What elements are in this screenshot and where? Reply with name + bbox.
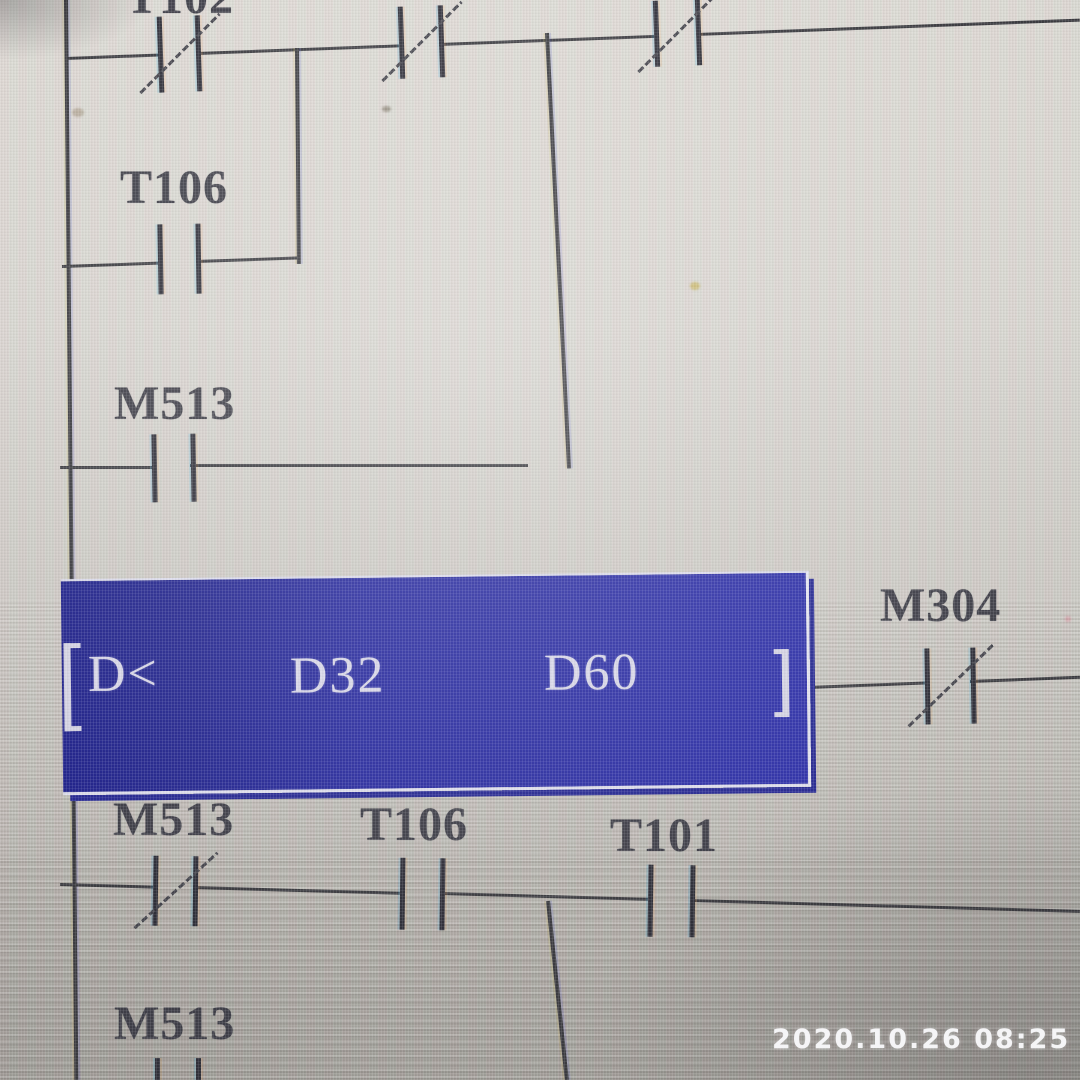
contact-rung1-1-nc[interactable]: [157, 15, 203, 92]
label-rung3-m513: M513: [113, 792, 234, 847]
contact-bar-left: [924, 648, 930, 724]
screen-smudge: [382, 106, 391, 112]
monitor-photo: T102 T106 M513 M304 M513 T106 T101 M513 …: [0, 0, 1080, 1080]
contact-bar-right: [196, 1058, 201, 1080]
contact-bar-left: [647, 865, 653, 937]
contact-m304-nc[interactable]: [924, 648, 976, 725]
rung2-output-wire-seg1: [808, 682, 925, 689]
rung3-wire-seg4: [690, 899, 1080, 913]
contact-bar-left: [399, 858, 405, 930]
contact-rung3-t106-no[interactable]: [399, 858, 445, 931]
left-power-rail: [64, 0, 78, 1080]
label-rung1-contact1: T102: [126, 0, 234, 25]
contact-bar-left: [398, 7, 406, 79]
contact-bar-left: [157, 17, 165, 93]
rung3-wire-seg2: [193, 886, 400, 895]
rung3-wire-seg3: [440, 892, 648, 901]
open-bracket-icon: [64, 643, 82, 731]
nc-slash-icon: [908, 643, 995, 727]
branch-vertical-t106: [295, 48, 301, 264]
contact-bar-left: [155, 1058, 160, 1080]
contact-bar-left: [153, 856, 159, 926]
rung1-wire-seg1: [66, 53, 160, 60]
compare-opcode: D<: [88, 644, 160, 704]
contact-bar-right: [439, 858, 445, 930]
branch-t106-wire-seg2: [196, 256, 300, 263]
label-branch-m513: M513: [114, 376, 235, 431]
close-bracket-icon: [774, 649, 790, 717]
contact-bar-right: [689, 865, 695, 937]
label-m304: M304: [880, 578, 1001, 633]
rung2-output-wire-seg2: [970, 676, 1080, 683]
contact-branch-t106-no[interactable]: [157, 224, 201, 295]
nc-slash-icon: [134, 852, 219, 929]
contact-rung4-m513-no[interactable]: [155, 1058, 201, 1080]
rung1-wire-seg4: [696, 19, 1080, 36]
branch-m513-wire-seg2: [190, 464, 528, 467]
contact-bar-right: [193, 856, 199, 926]
contact-rung3-m513-nc[interactable]: [153, 856, 199, 927]
branch-vertical-m513: [545, 33, 571, 469]
compare-operand2: D60: [544, 643, 640, 703]
label-rung4-m513: M513: [114, 996, 235, 1051]
label-rung3-t106: T106: [360, 797, 468, 852]
contact-bar-right: [190, 434, 196, 502]
contact-rung1-3-nc[interactable]: [653, 0, 702, 67]
rung3-branch-vertical: [546, 901, 569, 1080]
contact-rung1-2-nc[interactable]: [398, 5, 445, 79]
camera-timestamp-watermark: 2020.10.26 08:25: [772, 1024, 1070, 1055]
label-branch-t106: T106: [120, 160, 228, 215]
screen-smudge: [690, 282, 700, 290]
label-rung3-t101: T101: [610, 808, 718, 863]
nc-slash-icon: [381, 1, 462, 82]
screen-smudge: [1065, 616, 1071, 622]
screen-smudge: [72, 108, 84, 117]
compare-operand1: D32: [290, 646, 386, 706]
compare-instruction-block-selected[interactable]: D< D32 D60: [61, 571, 811, 795]
contact-bar-right: [195, 224, 201, 294]
contact-rung3-t101-no[interactable]: [647, 865, 695, 938]
contact-bar-left: [157, 224, 163, 294]
branch-m513-wire-seg1: [60, 466, 152, 469]
contact-bar-left: [151, 434, 157, 502]
branch-t106-wire-seg1: [62, 262, 158, 268]
contact-branch-m513-no[interactable]: [151, 434, 196, 503]
